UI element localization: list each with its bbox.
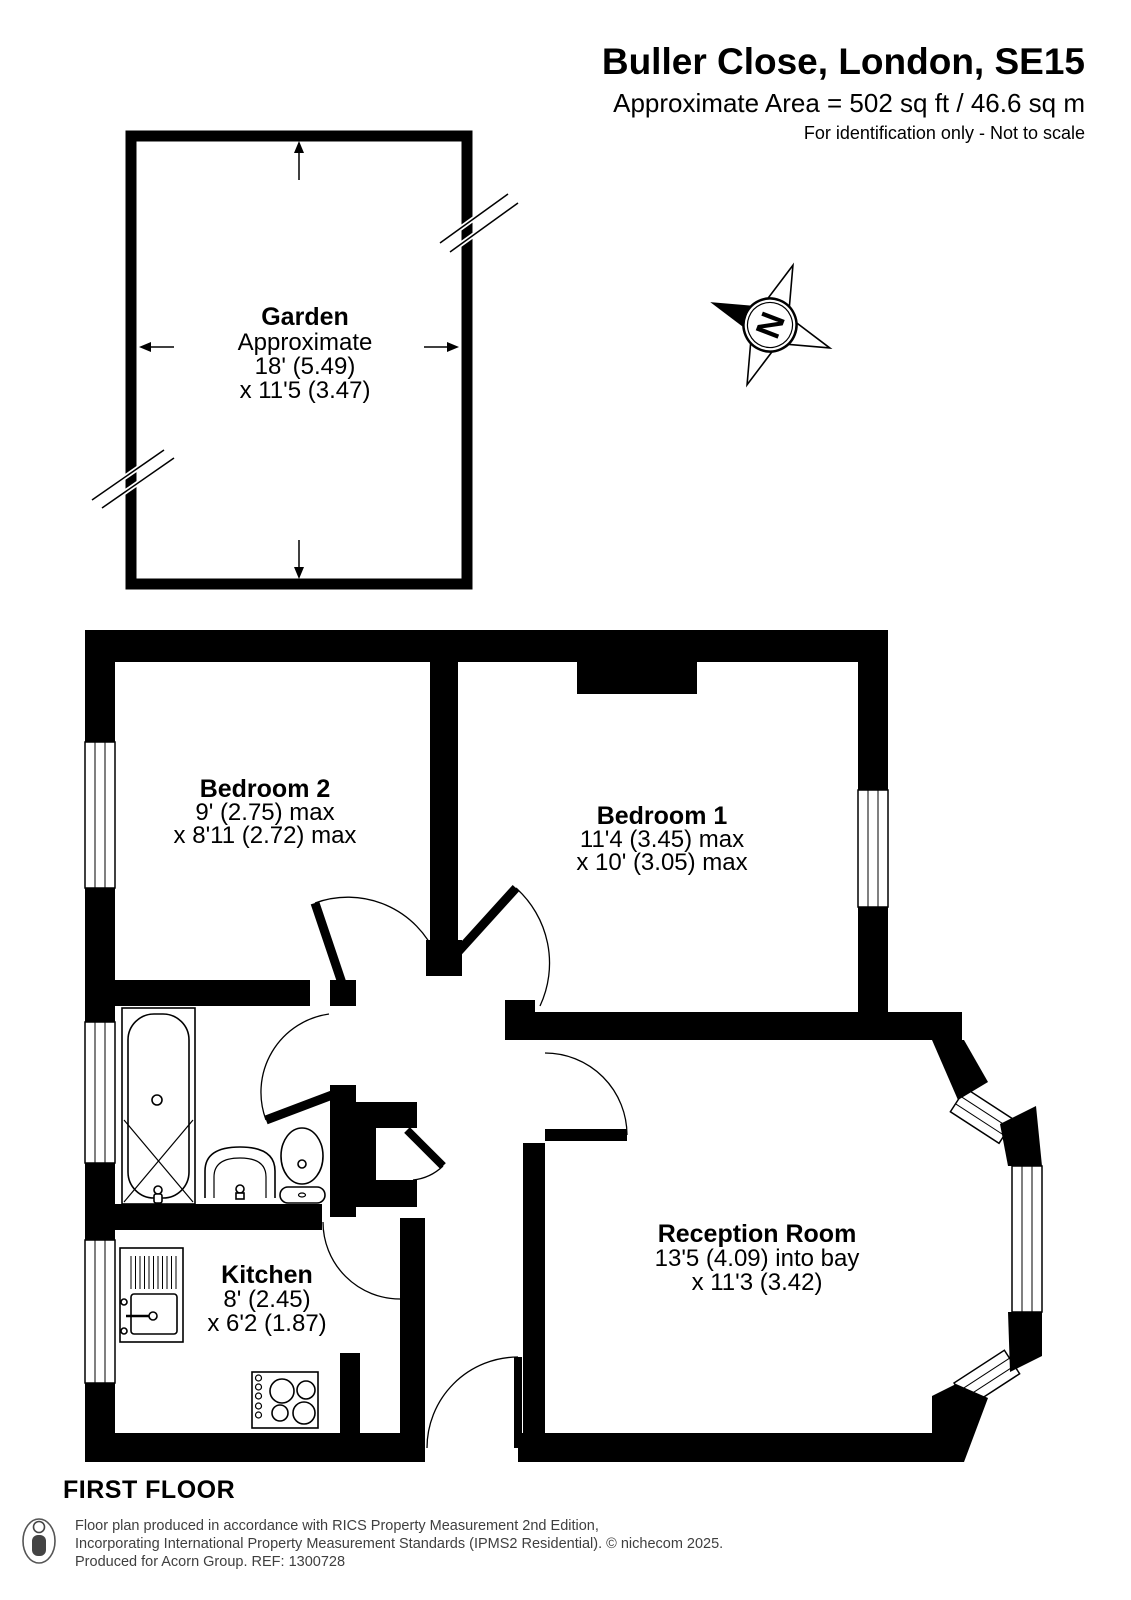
- floor-plan: Bedroom 2 9' (2.75) max x 8'11 (2.72) ma…: [85, 630, 1042, 1462]
- garden-dim2: x 11'5 (3.47): [240, 377, 371, 404]
- window-bedroom1: [858, 790, 888, 907]
- door-cupboard: [407, 1130, 443, 1180]
- window-bathroom: [85, 1022, 115, 1163]
- kitchen-dim2: x 6'2 (1.87): [207, 1310, 326, 1337]
- door-reception: [545, 1053, 627, 1141]
- reception-name: Reception Room: [658, 1220, 857, 1248]
- bedroom2-label: Bedroom 2 9' (2.75) max x 8'11 (2.72) ma…: [174, 775, 357, 849]
- header: Buller Close, London, SE15 Approximate A…: [602, 41, 1085, 143]
- footer-line1: Floor plan produced in accordance with R…: [75, 1518, 599, 1534]
- door-bedroom1: [448, 888, 550, 1006]
- floor-label: FIRST FLOOR: [63, 1476, 235, 1504]
- room-labels: Bedroom 2 9' (2.75) max x 8'11 (2.72) ma…: [174, 775, 860, 1337]
- window-bay-mid: [1012, 1166, 1042, 1312]
- bedroom1-dim2: x 10' (3.05) max: [576, 849, 747, 876]
- bay-window: [932, 1040, 1042, 1462]
- garden-dim1: 18' (5.49): [255, 353, 356, 380]
- door-entrance: [427, 1357, 518, 1448]
- hob-icon: [252, 1372, 318, 1428]
- kitchen-sink-icon: [120, 1248, 183, 1342]
- window-kitchen: [85, 1240, 115, 1383]
- garden-approx: Approximate: [238, 329, 373, 356]
- disclaimer: For identification only - Not to scale: [804, 123, 1085, 143]
- window-bedroom2: [85, 742, 115, 888]
- bathtub-icon: [122, 1008, 195, 1204]
- floorplan-canvas: Buller Close, London, SE15 Approximate A…: [0, 0, 1131, 1600]
- floorplan-page: Buller Close, London, SE15 Approximate A…: [0, 0, 1131, 1600]
- sink-icon: [205, 1147, 275, 1199]
- kitchen-name: Kitchen: [221, 1261, 313, 1289]
- bedroom1-label: Bedroom 1 11'4 (3.45) max x 10' (3.05) m…: [576, 802, 747, 876]
- footer-line3: Produced for Acorn Group. REF: 1300728: [75, 1554, 345, 1570]
- footer: Floor plan produced in accordance with R…: [23, 1518, 723, 1570]
- toilet-icon: [280, 1128, 325, 1203]
- garden-name: Garden: [261, 303, 349, 331]
- approximate-area: Approximate Area = 502 sq ft / 46.6 sq m: [613, 88, 1085, 118]
- page-title: Buller Close, London, SE15: [602, 41, 1085, 82]
- garden-plan: Garden Approximate 18' (5.49) x 11'5 (3.…: [92, 136, 518, 584]
- person-icon: [23, 1519, 55, 1563]
- kitchen-label: Kitchen 8' (2.45) x 6'2 (1.87): [207, 1261, 326, 1337]
- compass-icon: N: [687, 242, 852, 407]
- door-bathroom: [261, 1014, 340, 1120]
- walls: [85, 630, 962, 1462]
- kitchen-dim1: 8' (2.45): [223, 1286, 310, 1313]
- reception-dim2: x 11'3 (3.42): [692, 1269, 823, 1296]
- door-kitchen: [323, 1222, 400, 1299]
- bedroom2-dim2: x 8'11 (2.72) max: [174, 822, 357, 849]
- door-bedroom2: [315, 897, 436, 992]
- reception-dim1: 13'5 (4.09) into bay: [655, 1245, 860, 1272]
- footer-line2: Incorporating International Property Mea…: [75, 1536, 723, 1552]
- reception-label: Reception Room 13'5 (4.09) into bay x 11…: [655, 1220, 860, 1296]
